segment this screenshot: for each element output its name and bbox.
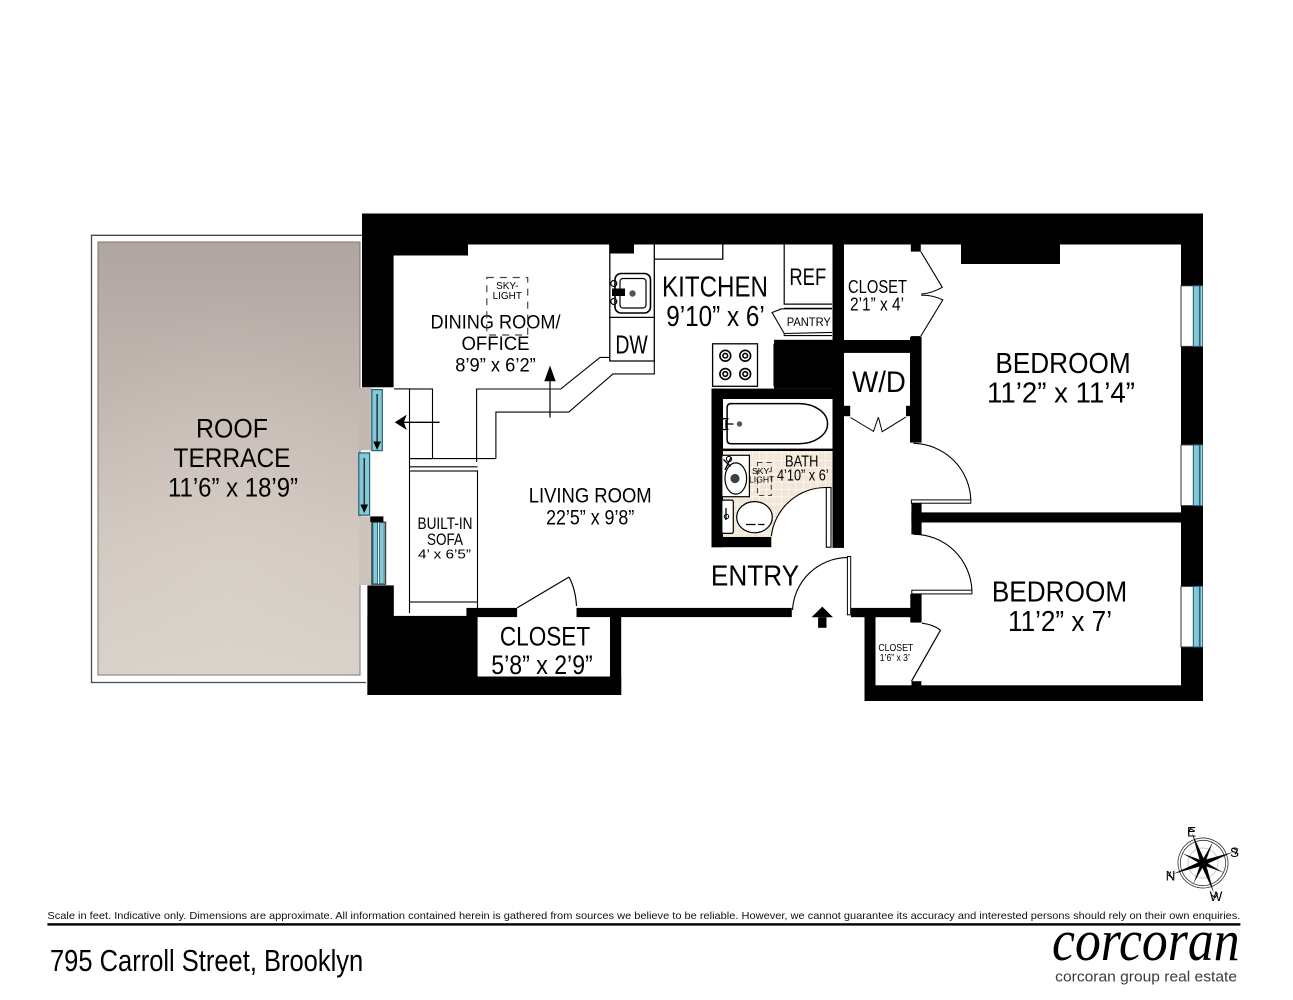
- svg-text:ENTRY: ENTRY: [711, 561, 799, 593]
- svg-text:1’6” x 3’: 1’6” x 3’: [880, 652, 910, 664]
- svg-text:22’5” x 9’8”: 22’5” x 9’8”: [546, 507, 634, 530]
- svg-text:BEDROOM: BEDROOM: [992, 575, 1127, 607]
- svg-text:DINING ROOM/: DINING ROOM/: [431, 311, 562, 333]
- svg-text:CLOSET: CLOSET: [500, 622, 590, 652]
- svg-text:ROOF: ROOF: [196, 414, 268, 444]
- svg-text:8’9” x 6’2”: 8’9” x 6’2”: [455, 355, 536, 377]
- svg-text:11’6” x 18’9”: 11’6” x 18’9”: [168, 473, 298, 503]
- svg-text:BEDROOM: BEDROOM: [995, 347, 1130, 379]
- svg-text:W/D: W/D: [852, 366, 906, 399]
- svg-text:LIGHT: LIGHT: [493, 291, 522, 302]
- svg-text:9’10” x 6’: 9’10” x 6’: [666, 300, 765, 332]
- svg-text:PANTRY: PANTRY: [787, 315, 831, 329]
- svg-text:corcoran: corcoran: [1052, 908, 1240, 973]
- svg-text:LIGHT: LIGHT: [749, 475, 775, 485]
- svg-text:5’8” x 2’9”: 5’8” x 2’9”: [491, 650, 593, 680]
- svg-text:S: S: [1230, 845, 1239, 860]
- svg-text:LIVING ROOM: LIVING ROOM: [529, 485, 652, 508]
- svg-text:W: W: [1210, 889, 1223, 904]
- svg-text:E: E: [1187, 825, 1196, 840]
- svg-text:4’10” x 6’: 4’10” x 6’: [777, 468, 829, 485]
- svg-text:2’1” x 4’: 2’1” x 4’: [850, 294, 904, 314]
- svg-text:REF: REF: [789, 264, 826, 291]
- svg-text:N: N: [1166, 869, 1176, 884]
- svg-text:4’ x 6’5”: 4’ x 6’5”: [418, 547, 471, 562]
- svg-text:corcoran group real estate: corcoran group real estate: [1055, 969, 1237, 986]
- svg-text:11’2” x 7’: 11’2” x 7’: [1008, 605, 1112, 637]
- svg-text:TERRACE: TERRACE: [174, 443, 291, 473]
- svg-text:11’2” x 11’4”: 11’2” x 11’4”: [987, 377, 1135, 409]
- svg-text:OFFICE: OFFICE: [462, 333, 530, 355]
- svg-text:795 Carroll Street, Brooklyn: 795 Carroll Street, Brooklyn: [50, 943, 363, 978]
- svg-text:DW: DW: [615, 330, 648, 360]
- svg-text:KITCHEN: KITCHEN: [662, 270, 768, 302]
